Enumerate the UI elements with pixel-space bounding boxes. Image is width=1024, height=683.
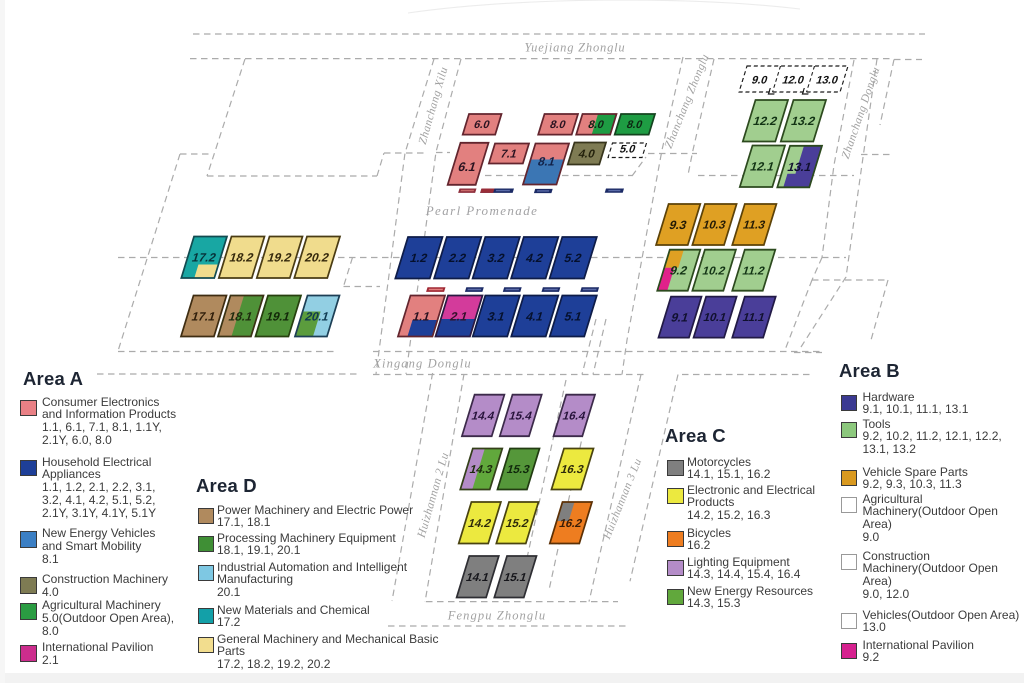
svg-text:12.1: 12.1 (749, 160, 777, 174)
svg-text:18.1: 18.1 (227, 310, 255, 324)
svg-text:17.2: 17.2 (190, 251, 218, 265)
svg-text:Huizhannan 2 Lu: Huizhannan 2 Lu (414, 451, 452, 540)
svg-text:Zhanchang Donglu: Zhanchang Donglu (839, 65, 883, 160)
svg-text:16.2: 16.2 (558, 517, 585, 530)
svg-text:10.2: 10.2 (701, 265, 728, 278)
svg-text:Yuejiang Zhonglu: Yuejiang Zhonglu (525, 41, 626, 55)
svg-text:16.3: 16.3 (559, 463, 586, 476)
svg-text:Huizhannan 3 Lu: Huizhannan 3 Lu (601, 457, 645, 542)
svg-text:17.1: 17.1 (190, 310, 218, 324)
svg-text:19.1: 19.1 (264, 310, 292, 324)
svg-text:15.4: 15.4 (507, 410, 534, 423)
svg-text:14.2: 14.2 (466, 517, 493, 530)
svg-text:16.4: 16.4 (561, 410, 588, 423)
svg-text:12.0: 12.0 (781, 75, 806, 87)
svg-text:15.1: 15.1 (502, 571, 529, 584)
svg-text:10.3: 10.3 (701, 219, 728, 232)
svg-text:11.3: 11.3 (741, 219, 767, 232)
svg-text:15.2: 15.2 (504, 517, 531, 530)
svg-text:13.2: 13.2 (790, 114, 818, 128)
svg-text:13.1: 13.1 (786, 160, 814, 174)
svg-text:12.2: 12.2 (752, 114, 780, 128)
svg-text:14.3: 14.3 (468, 463, 495, 476)
svg-text:19.2: 19.2 (266, 251, 294, 265)
svg-text:11.1: 11.1 (741, 311, 767, 324)
svg-text:20.2: 20.2 (303, 251, 331, 265)
svg-text:14.1: 14.1 (464, 571, 491, 584)
svg-text:20.1: 20.1 (303, 310, 331, 324)
svg-text:Zhanchang Xilu: Zhanchang Xilu (416, 65, 451, 145)
svg-text:Fengpu Zhonglu: Fengpu Zhonglu (447, 609, 546, 623)
svg-text:10.1: 10.1 (702, 311, 729, 324)
svg-text:Zhanchang Zhonglu: Zhanchang Zhonglu (662, 52, 712, 150)
svg-text:Pearl Promenade: Pearl Promenade (425, 203, 539, 218)
svg-text:18.2: 18.2 (228, 251, 256, 265)
svg-text:Xingang Donglu: Xingang Donglu (372, 357, 471, 371)
svg-text:13.0: 13.0 (815, 75, 840, 87)
svg-text:14.4: 14.4 (470, 410, 497, 423)
svg-text:11.2: 11.2 (741, 265, 767, 278)
svg-text:15.3: 15.3 (505, 463, 532, 476)
